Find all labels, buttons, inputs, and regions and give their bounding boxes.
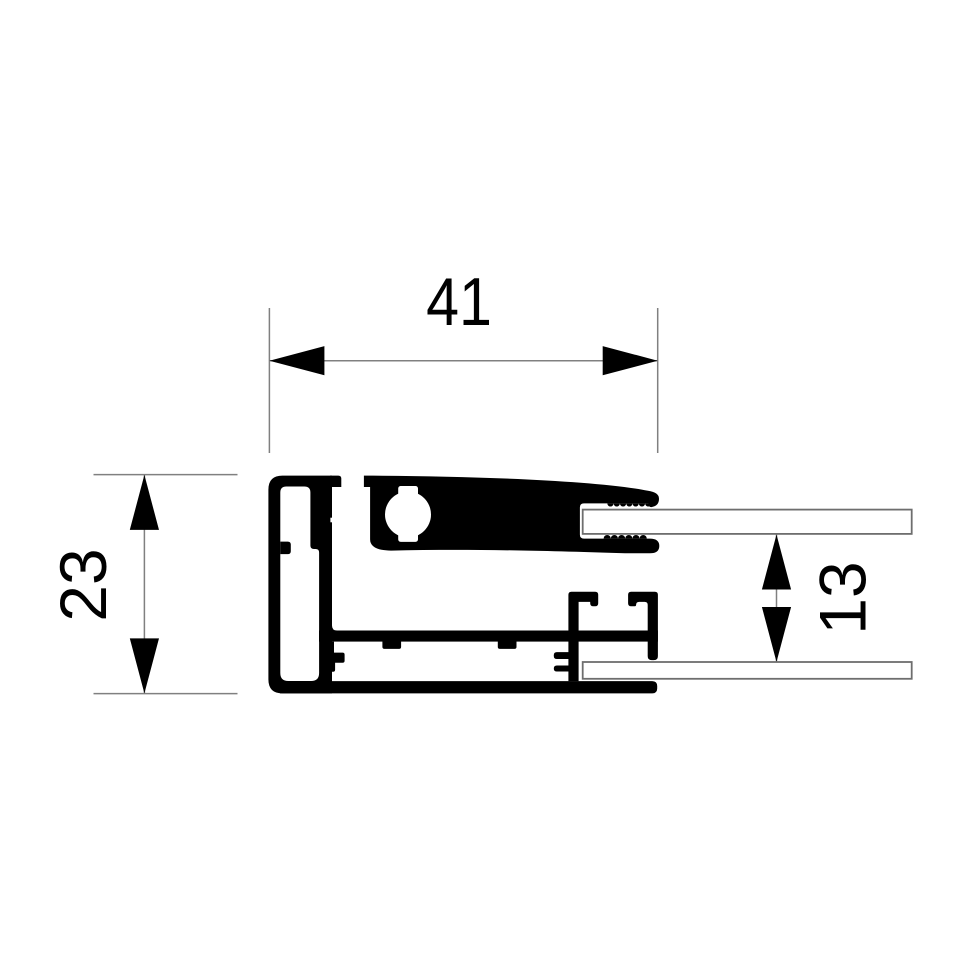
- svg-text:41: 41: [426, 263, 492, 340]
- svg-text:23: 23: [46, 548, 120, 621]
- svg-text:13: 13: [806, 561, 880, 634]
